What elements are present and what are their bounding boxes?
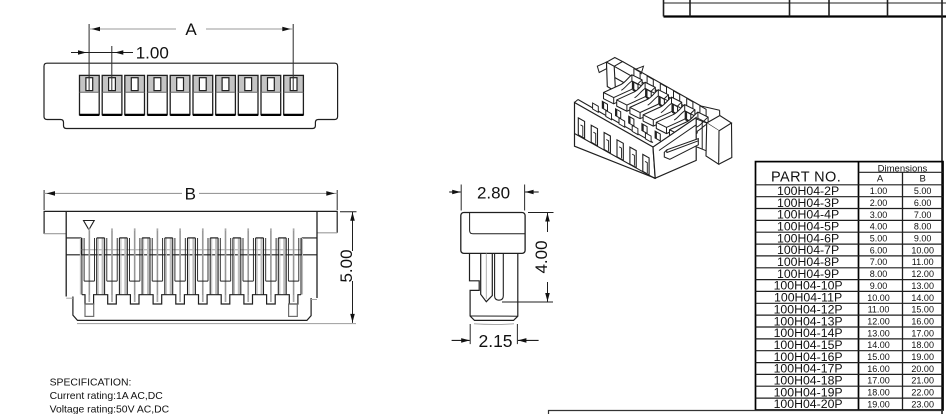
svg-text:4.00: 4.00 (532, 240, 551, 273)
svg-text:14.00: 14.00 (867, 340, 890, 350)
svg-text:1.00: 1.00 (136, 44, 169, 63)
svg-text:13.00: 13.00 (911, 281, 934, 291)
svg-text:5.00: 5.00 (870, 234, 888, 244)
svg-text:19.00: 19.00 (867, 399, 890, 409)
svg-text:20.00: 20.00 (911, 364, 934, 374)
svg-text:5.00: 5.00 (914, 186, 932, 196)
svg-text:A: A (877, 174, 884, 185)
svg-text:B: B (920, 174, 926, 185)
svg-text:12.00: 12.00 (867, 316, 890, 326)
svg-text:11.00: 11.00 (868, 305, 890, 315)
svg-text:2.00: 2.00 (870, 198, 888, 208)
svg-text:17.00: 17.00 (911, 328, 934, 338)
svg-text:16.00: 16.00 (911, 316, 934, 326)
svg-text:15.00: 15.00 (867, 352, 890, 362)
svg-text:17.00: 17.00 (867, 376, 890, 386)
svg-text:4.00: 4.00 (870, 222, 888, 232)
svg-text:19.00: 19.00 (911, 352, 934, 362)
svg-text:2.80: 2.80 (477, 183, 510, 202)
svg-text:100H04-20P: 100H04-20P (774, 397, 843, 411)
svg-text:Voltage rating:50V AC,DC: Voltage rating:50V AC,DC (50, 404, 170, 414)
svg-text:12.00: 12.00 (911, 269, 934, 279)
svg-text:PART NO.: PART NO. (771, 169, 841, 185)
svg-text:8.00: 8.00 (870, 269, 888, 279)
svg-text:7.00: 7.00 (914, 210, 932, 220)
svg-text:8.00: 8.00 (914, 222, 932, 232)
svg-text:10.00: 10.00 (867, 293, 890, 303)
svg-text:9.00: 9.00 (914, 234, 932, 244)
svg-text:5.00: 5.00 (337, 249, 356, 282)
svg-text:18.00: 18.00 (867, 388, 890, 398)
svg-text:23.00: 23.00 (911, 399, 934, 409)
svg-text:3.00: 3.00 (870, 210, 888, 220)
svg-text:SPECIFICATION:: SPECIFICATION: (50, 378, 132, 389)
svg-text:1.00: 1.00 (870, 186, 888, 196)
svg-text:6.00: 6.00 (914, 198, 932, 208)
svg-text:10.00: 10.00 (911, 245, 934, 255)
svg-text:13.00: 13.00 (867, 328, 890, 338)
svg-text:15.00: 15.00 (911, 305, 934, 315)
svg-text:9.00: 9.00 (870, 281, 888, 291)
svg-text:B: B (185, 185, 196, 204)
svg-text:22.00: 22.00 (911, 388, 934, 398)
svg-text:Current rating:1A AC,DC: Current rating:1A AC,DC (50, 391, 164, 402)
svg-text:6.00: 6.00 (870, 245, 888, 255)
svg-text:2.15: 2.15 (478, 331, 512, 351)
svg-text:14.00: 14.00 (911, 293, 934, 303)
svg-text:21.00: 21.00 (911, 376, 934, 386)
svg-text:11.00: 11.00 (912, 257, 934, 267)
svg-text:18.00: 18.00 (911, 340, 934, 350)
svg-text:7.00: 7.00 (870, 257, 888, 267)
svg-text:A: A (185, 20, 197, 39)
svg-text:16.00: 16.00 (867, 364, 890, 374)
